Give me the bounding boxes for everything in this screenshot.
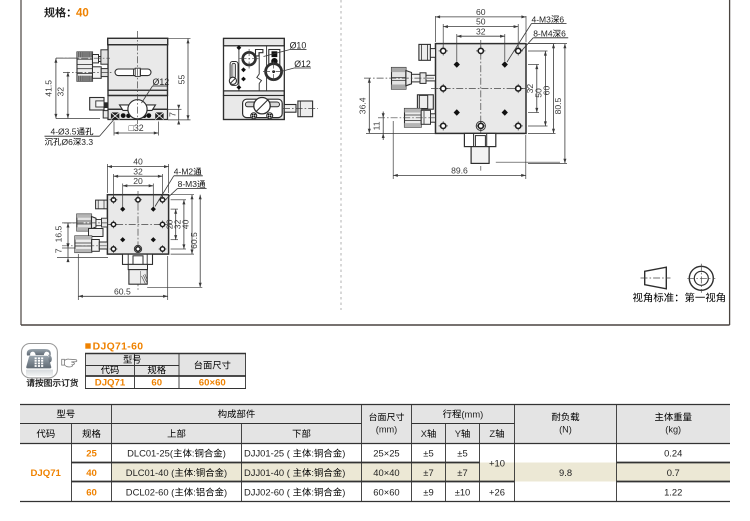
svg-text:Y: Y	[455, 428, 462, 439]
svg-text:Ø12: Ø12	[294, 59, 311, 69]
svg-text:60.5: 60.5	[114, 286, 131, 296]
svg-text:60×60: 60×60	[199, 377, 226, 388]
svg-text:): )	[342, 467, 345, 478]
svg-text:): )	[342, 487, 345, 498]
svg-text::: :	[193, 467, 196, 478]
svg-text:): )	[224, 487, 227, 498]
svg-text:60: 60	[476, 7, 486, 17]
svg-text:(kg): (kg)	[665, 425, 681, 435]
svg-text:16.5: 16.5	[53, 225, 63, 242]
svg-text:32: 32	[476, 26, 486, 36]
svg-text:(N): (N)	[559, 425, 572, 435]
svg-text:±5: ±5	[457, 448, 467, 459]
svg-text:DJJ01-40 (: DJJ01-40 (	[244, 467, 291, 478]
svg-text:25×25: 25×25	[373, 448, 399, 459]
svg-text:DJQ71: DJQ71	[95, 377, 126, 388]
svg-text:1.22: 1.22	[664, 487, 682, 498]
svg-text:): )	[224, 467, 227, 478]
svg-text:±10: ±10	[455, 487, 471, 498]
svg-text:(mm): (mm)	[461, 408, 483, 419]
svg-text:60: 60	[542, 86, 552, 96]
svg-text::: :	[311, 487, 314, 498]
svg-text:+26: +26	[489, 487, 505, 498]
svg-text:±7: ±7	[423, 467, 433, 478]
svg-text:60: 60	[86, 488, 97, 499]
svg-text:8-M3: 8-M3	[178, 179, 198, 189]
svg-text::: :	[311, 467, 314, 478]
svg-text:41.5: 41.5	[44, 80, 54, 97]
svg-text:DJQ71: DJQ71	[31, 468, 62, 479]
svg-text:3.3: 3.3	[81, 137, 93, 147]
svg-text:4-M3: 4-M3	[532, 14, 552, 24]
svg-text:25: 25	[86, 449, 97, 460]
svg-text:4-M2: 4-M2	[174, 167, 194, 177]
svg-text:): )	[342, 448, 345, 459]
svg-text:0.24: 0.24	[664, 448, 682, 459]
svg-text:9.8: 9.8	[559, 467, 572, 478]
svg-text:7: 7	[53, 248, 63, 253]
svg-text:60.5: 60.5	[189, 232, 199, 249]
svg-text:20: 20	[133, 176, 143, 186]
svg-text:DJJ01-25 (: DJJ01-25 (	[244, 448, 291, 459]
svg-text:±9: ±9	[423, 487, 433, 498]
svg-text:50: 50	[476, 17, 486, 27]
svg-text:Z: Z	[489, 428, 495, 439]
svg-text::: :	[192, 448, 195, 459]
svg-text:36.4: 36.4	[358, 97, 368, 114]
svg-text:DLC01-25(: DLC01-25(	[127, 448, 174, 459]
svg-text:6: 6	[561, 29, 566, 39]
svg-text:60: 60	[151, 377, 162, 388]
svg-text:40: 40	[76, 8, 89, 20]
svg-text:40: 40	[133, 157, 143, 167]
svg-text:DLC01-40 (: DLC01-40 (	[126, 467, 175, 478]
svg-text:Ø10: Ø10	[290, 40, 307, 50]
svg-text:DJJ02-60 (: DJJ02-60 (	[244, 487, 291, 498]
svg-text:DJQ71-60: DJQ71-60	[93, 341, 144, 352]
svg-text:+10: +10	[489, 458, 505, 469]
svg-text::: :	[311, 448, 314, 459]
svg-text:40×40: 40×40	[373, 467, 399, 478]
svg-text:0.7: 0.7	[667, 467, 680, 478]
svg-text:7: 7	[168, 112, 178, 117]
svg-text:Ø12: Ø12	[153, 77, 170, 87]
svg-text::: :	[193, 487, 196, 498]
svg-text:±5: ±5	[423, 448, 433, 459]
svg-text:40: 40	[86, 468, 97, 479]
svg-text:89.6: 89.6	[451, 165, 468, 175]
svg-text:6: 6	[559, 14, 564, 24]
svg-text:): )	[223, 448, 226, 459]
svg-text:32: 32	[56, 87, 66, 97]
svg-text:55: 55	[177, 75, 187, 85]
svg-text:40: 40	[181, 219, 191, 229]
svg-text:X: X	[421, 428, 428, 439]
svg-text:32: 32	[133, 166, 143, 176]
svg-text:11: 11	[372, 121, 382, 130]
svg-text:(mm): (mm)	[376, 425, 397, 435]
svg-text:±7: ±7	[457, 467, 467, 478]
svg-text:DCL02-60 (: DCL02-60 (	[126, 487, 175, 498]
svg-text:80.5: 80.5	[553, 97, 563, 114]
svg-text:□32: □32	[129, 123, 144, 133]
svg-text:8-M4: 8-M4	[533, 29, 553, 39]
svg-text:4-Ø3.5: 4-Ø3.5	[51, 127, 77, 137]
svg-text:60×60: 60×60	[373, 487, 399, 498]
svg-text:Ø6: Ø6	[62, 137, 74, 147]
